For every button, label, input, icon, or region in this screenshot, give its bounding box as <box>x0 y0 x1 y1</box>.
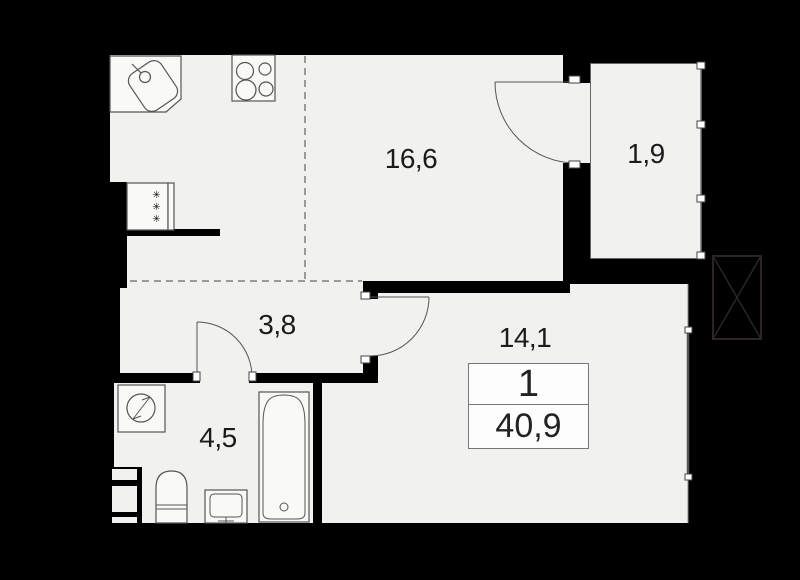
bedroom-window <box>685 284 692 523</box>
label-bedroom-area: 14,1 <box>499 322 552 354</box>
balcony-door <box>495 76 580 168</box>
washbasin-icon <box>205 490 247 523</box>
bedroom-door <box>361 292 429 363</box>
washing-machine-icon <box>118 385 165 432</box>
apartment-summary-box: 1 40,9 <box>468 363 589 449</box>
toilet-icon <box>156 471 187 523</box>
label-hallway-area: 3,8 <box>258 309 295 341</box>
floor-plan: ✳✳✳ 16,6 1,9 3,8 14,1 4,5 1 40,9 <box>0 0 800 580</box>
cooktop-icon <box>232 55 275 101</box>
label-balcony-area: 1,9 <box>627 138 664 170</box>
rooms-count: 1 <box>469 364 588 405</box>
balcony-glazing <box>697 62 705 259</box>
duct-shaft <box>108 467 142 525</box>
plan-linework <box>0 0 800 580</box>
label-bathroom-area: 4,5 <box>199 422 236 454</box>
bathroom-door <box>193 322 256 381</box>
total-area: 40,9 <box>469 405 588 448</box>
freezer-marks: ✳✳✳ <box>149 190 163 230</box>
ventilation-shaft-icon <box>713 256 761 339</box>
bathtub-icon <box>259 392 309 522</box>
label-kitchen-living-area: 16,6 <box>385 143 438 175</box>
